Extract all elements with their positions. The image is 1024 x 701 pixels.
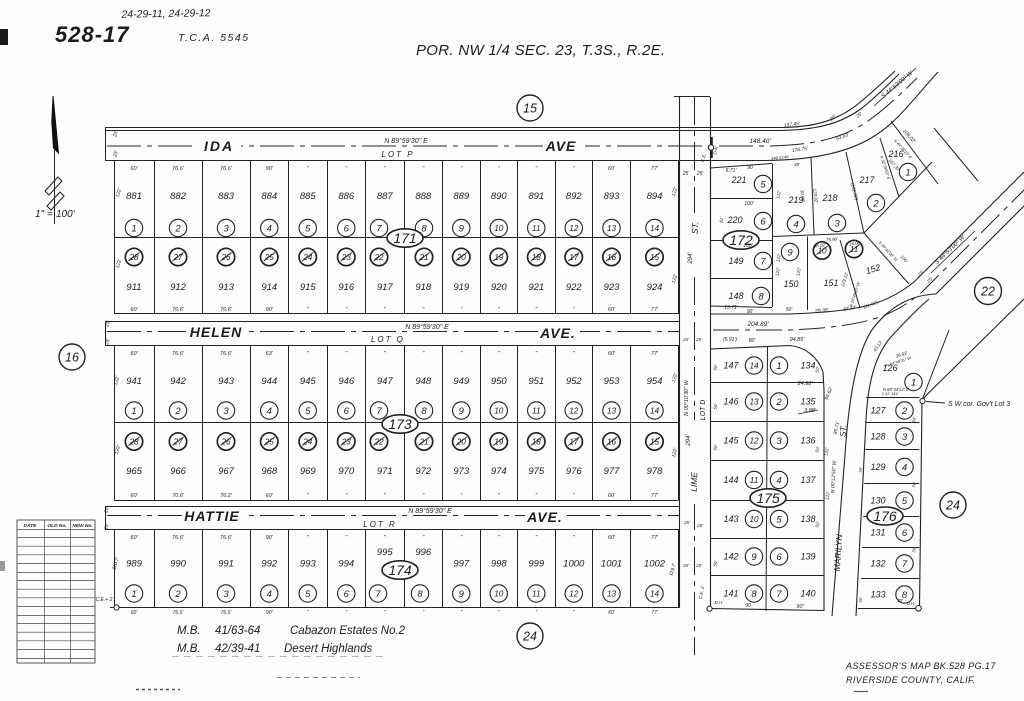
svg-text:(5.91'): (5.91') xyxy=(723,337,737,343)
svg-text:147: 147 xyxy=(723,361,739,371)
svg-text:25': 25' xyxy=(683,520,690,525)
svg-text:148: 148 xyxy=(728,291,743,301)
svg-text:6: 6 xyxy=(902,528,908,539)
svg-text:6: 6 xyxy=(776,552,782,563)
svg-text:S W cor. Gov't Lot 3: S W cor. Gov't Lot 3 xyxy=(948,401,1010,408)
svg-text:9: 9 xyxy=(459,589,465,600)
svg-text:60': 60' xyxy=(608,535,616,541)
svg-text:": " xyxy=(535,610,537,616)
svg-text:5: 5 xyxy=(760,179,766,190)
svg-text:1: 1 xyxy=(911,377,916,388)
svg-text:": " xyxy=(460,610,462,616)
svg-text:77': 77' xyxy=(651,351,659,357)
svg-text:3.88': 3.88' xyxy=(804,408,817,414)
svg-text:946: 946 xyxy=(338,376,355,387)
svg-text:888: 888 xyxy=(415,191,432,202)
svg-text:13: 13 xyxy=(749,397,759,406)
svg-text:951: 951 xyxy=(528,376,544,387)
svg-text:10: 10 xyxy=(494,589,504,598)
svg-text:7: 7 xyxy=(902,559,908,570)
svg-text:975: 975 xyxy=(528,466,545,477)
svg-text:Cabazon Estates No.2: Cabazon Estates No.2 xyxy=(290,625,406,637)
svg-text:77': 77' xyxy=(651,166,659,172)
svg-text:24-29-11, 24-29-12: 24-29-11, 24-29-12 xyxy=(120,7,210,21)
svg-text:100': 100' xyxy=(743,243,753,249)
svg-text:HELEN: HELEN xyxy=(190,324,242,340)
svg-text:1.11' 144': 1.11' 144' xyxy=(882,391,899,396)
svg-text:3: 3 xyxy=(834,218,840,229)
svg-text:9: 9 xyxy=(751,552,757,563)
svg-text:IDA: IDA xyxy=(204,138,234,154)
svg-text:5: 5 xyxy=(305,406,311,417)
svg-text:131: 131 xyxy=(870,528,885,538)
svg-text:176: 176 xyxy=(873,508,897,524)
svg-text:139: 139 xyxy=(800,552,815,562)
svg-text:886: 886 xyxy=(338,191,355,202)
svg-text:950: 950 xyxy=(491,376,508,387)
svg-text:HATTIE: HATTIE xyxy=(184,508,240,524)
svg-text:76.6': 76.6' xyxy=(173,610,185,616)
svg-text:11: 11 xyxy=(750,476,759,485)
svg-text:143: 143 xyxy=(723,514,738,524)
svg-text:3: 3 xyxy=(776,436,782,447)
svg-text:999: 999 xyxy=(528,559,545,570)
svg-text:8: 8 xyxy=(758,291,764,302)
svg-text:90': 90' xyxy=(266,307,274,313)
svg-text:DATE: DATE xyxy=(24,523,38,529)
svg-text:994: 994 xyxy=(338,559,354,570)
svg-text:972: 972 xyxy=(415,466,432,477)
svg-text:890: 890 xyxy=(491,191,508,202)
svg-text:127: 127 xyxy=(870,406,886,416)
svg-text:60': 60' xyxy=(608,610,616,616)
svg-text:944: 944 xyxy=(261,376,277,387)
svg-text:129: 129 xyxy=(870,462,885,472)
svg-text:881: 881 xyxy=(126,191,142,202)
svg-text:N 89°59'30" E: N 89°59'30" E xyxy=(405,323,449,331)
svg-text:42/39-41: 42/39-41 xyxy=(215,643,260,655)
svg-text:917: 917 xyxy=(377,282,394,293)
svg-text:90: 90 xyxy=(745,603,751,609)
svg-text:1: 1 xyxy=(131,406,136,417)
svg-text:": " xyxy=(345,610,347,616)
svg-text:70.6': 70.6' xyxy=(172,493,185,499)
svg-text:968: 968 xyxy=(261,466,278,477)
svg-text:921: 921 xyxy=(528,282,544,293)
svg-text:76.6': 76.6' xyxy=(172,351,185,357)
svg-text:60': 60' xyxy=(130,351,138,357)
svg-text:882: 882 xyxy=(170,191,187,202)
svg-text:952: 952 xyxy=(566,376,583,387)
svg-text:5: 5 xyxy=(305,223,311,234)
svg-text:911: 911 xyxy=(126,282,141,293)
svg-text:63': 63' xyxy=(266,351,274,357)
svg-text:13: 13 xyxy=(607,224,617,233)
svg-text:941: 941 xyxy=(126,376,142,387)
svg-text:LOT R: LOT R xyxy=(363,520,397,529)
svg-text:48': 48' xyxy=(794,162,800,167)
svg-text:173: 173 xyxy=(388,416,412,432)
svg-text:971: 971 xyxy=(377,466,393,477)
svg-text:90': 90' xyxy=(266,166,274,172)
svg-text:90': 90' xyxy=(266,610,274,616)
svg-text:993: 993 xyxy=(300,559,317,570)
svg-text:N 89°59'30" E: N 89°59'30" E xyxy=(408,507,452,515)
svg-text:50': 50' xyxy=(911,481,917,487)
svg-text:978: 978 xyxy=(647,466,664,477)
svg-text:4: 4 xyxy=(267,223,272,234)
svg-text:60': 60' xyxy=(130,166,138,172)
svg-text:920: 920 xyxy=(491,282,508,293)
svg-text:25': 25' xyxy=(682,337,689,342)
svg-text:990: 990 xyxy=(170,559,187,570)
svg-text:891: 891 xyxy=(528,191,544,202)
svg-text:50': 50' xyxy=(911,416,917,422)
svg-text:2: 2 xyxy=(775,397,782,408)
svg-text:70': 70' xyxy=(897,598,903,603)
svg-text:991: 991 xyxy=(218,559,234,570)
svg-text:144: 144 xyxy=(723,475,738,485)
svg-text:948: 948 xyxy=(415,376,432,387)
svg-text:76.6': 76.6' xyxy=(220,535,233,541)
svg-text:25': 25' xyxy=(696,171,705,177)
svg-text:949: 949 xyxy=(453,376,470,387)
svg-text:3: 3 xyxy=(902,432,908,443)
svg-text:970: 970 xyxy=(338,466,355,477)
svg-text:4: 4 xyxy=(267,406,272,417)
svg-text:Desert Highlands: Desert Highlands xyxy=(284,643,372,655)
svg-text:6: 6 xyxy=(760,216,766,227)
svg-text:77': 77' xyxy=(651,493,659,499)
svg-text:5: 5 xyxy=(776,514,782,525)
svg-text:8: 8 xyxy=(751,589,757,600)
svg-text:14: 14 xyxy=(749,361,759,370)
svg-text:2: 2 xyxy=(872,198,879,209)
svg-text:77': 77' xyxy=(651,535,659,541)
svg-text:1: 1 xyxy=(776,361,781,372)
svg-text:": " xyxy=(384,610,386,616)
svg-text:76.6': 76.6' xyxy=(172,307,185,313)
svg-text:7: 7 xyxy=(376,223,382,234)
svg-text:922: 922 xyxy=(566,282,583,293)
svg-text:": " xyxy=(573,610,575,616)
svg-text:294': 294' xyxy=(688,252,694,265)
svg-text:60': 60' xyxy=(130,535,138,541)
svg-text:9: 9 xyxy=(459,223,465,234)
svg-text:133: 133 xyxy=(870,590,885,600)
svg-text:976: 976 xyxy=(566,466,583,477)
svg-text:60': 60' xyxy=(130,307,138,313)
svg-text:942: 942 xyxy=(170,376,187,387)
svg-text:145: 145 xyxy=(723,436,739,446)
svg-text:76.6': 76.6' xyxy=(221,610,233,616)
svg-text:128: 128 xyxy=(870,432,885,442)
svg-text:LIME: LIME xyxy=(689,471,700,492)
svg-text:4: 4 xyxy=(902,462,907,473)
svg-text:RIVERSIDE COUNTY, CALIF.: RIVERSIDE COUNTY, CALIF. xyxy=(846,675,976,685)
svg-text:60': 60' xyxy=(608,493,616,499)
svg-text:945: 945 xyxy=(300,376,317,387)
svg-text:132: 132 xyxy=(870,559,885,569)
svg-text:146: 146 xyxy=(723,397,738,407)
svg-text:918: 918 xyxy=(415,282,432,293)
svg-text:912: 912 xyxy=(170,282,187,293)
svg-text:M.B.: M.B. xyxy=(177,643,201,655)
svg-text:13: 13 xyxy=(607,589,617,598)
svg-text:923: 923 xyxy=(604,282,621,293)
svg-text:9: 9 xyxy=(787,247,793,258)
svg-text:LOT Q: LOT Q xyxy=(371,335,405,344)
svg-text:94.85': 94.85' xyxy=(790,337,806,343)
svg-text:29.35': 29.35' xyxy=(814,307,830,314)
svg-text:14: 14 xyxy=(650,406,660,415)
svg-text:1" =: 1" = xyxy=(35,209,53,220)
svg-text:171: 171 xyxy=(393,230,416,246)
svg-text:1000: 1000 xyxy=(563,559,585,570)
svg-text:142: 142 xyxy=(723,552,738,562)
svg-text:ASSESSOR'S MAP BK.528 PG.17: ASSESSOR'S MAP BK.528 PG.17 xyxy=(845,661,996,671)
svg-text:2: 2 xyxy=(901,406,908,417)
svg-text:150: 150 xyxy=(783,279,798,289)
svg-text:7: 7 xyxy=(375,589,381,600)
svg-text:528-17: 528-17 xyxy=(55,22,130,47)
svg-text:25': 25' xyxy=(696,523,703,528)
svg-text:60': 60' xyxy=(608,166,616,172)
svg-text:7: 7 xyxy=(376,406,382,417)
svg-text:887: 887 xyxy=(377,191,394,202)
svg-text:12: 12 xyxy=(569,224,579,233)
svg-text:967: 967 xyxy=(218,466,235,477)
svg-text:973: 973 xyxy=(453,466,470,477)
svg-text:60': 60' xyxy=(130,493,138,499)
svg-text:977: 977 xyxy=(604,466,621,477)
svg-text:25': 25' xyxy=(682,171,691,177)
svg-text:1002: 1002 xyxy=(644,559,666,570)
svg-text:25': 25' xyxy=(682,563,689,568)
svg-text:50': 50' xyxy=(911,546,917,552)
svg-text:7: 7 xyxy=(776,589,782,600)
svg-text:14: 14 xyxy=(650,589,660,598)
svg-text:1: 1 xyxy=(131,589,136,600)
svg-text:2: 2 xyxy=(174,589,181,600)
svg-text:943: 943 xyxy=(218,376,235,387)
svg-text:221: 221 xyxy=(730,175,746,185)
svg-text:915: 915 xyxy=(300,282,317,293)
svg-text:25': 25' xyxy=(695,563,702,568)
svg-text:6: 6 xyxy=(344,223,350,234)
svg-text:76.6': 76.6' xyxy=(220,351,233,357)
svg-text:134: 134 xyxy=(800,361,815,371)
svg-text:24: 24 xyxy=(945,499,960,513)
svg-text:AVE: AVE xyxy=(545,138,577,154)
svg-text:": " xyxy=(422,610,424,616)
svg-text:M.B.: M.B. xyxy=(177,625,201,637)
svg-text:30.90': 30.90' xyxy=(799,190,805,203)
svg-text:892: 892 xyxy=(566,191,583,202)
svg-text:135: 135 xyxy=(800,397,816,407)
svg-text:174: 174 xyxy=(388,562,412,578)
svg-text:25': 25' xyxy=(695,337,702,342)
svg-text:": " xyxy=(307,610,309,616)
svg-text:ST.: ST. xyxy=(690,221,700,234)
svg-text:141: 141 xyxy=(723,589,738,599)
svg-text:22: 22 xyxy=(980,285,995,299)
svg-text:974: 974 xyxy=(491,466,507,477)
svg-text:AVE.: AVE. xyxy=(526,509,563,525)
svg-text:7: 7 xyxy=(760,256,766,267)
svg-text:LOT P: LOT P xyxy=(381,150,414,159)
svg-text:1001: 1001 xyxy=(601,559,622,570)
svg-text:996: 996 xyxy=(415,547,432,558)
svg-text:6: 6 xyxy=(344,406,350,417)
svg-text:947: 947 xyxy=(377,376,394,387)
svg-text:4: 4 xyxy=(793,219,798,230)
svg-text:220: 220 xyxy=(726,215,742,225)
svg-text:140: 140 xyxy=(800,589,815,599)
svg-text:76.6': 76.6' xyxy=(220,307,233,313)
svg-text:3: 3 xyxy=(223,589,229,600)
svg-text:50': 50' xyxy=(858,596,864,602)
svg-text:61': 61' xyxy=(719,216,725,223)
svg-text:995: 995 xyxy=(377,547,394,558)
svg-text:998: 998 xyxy=(491,559,508,570)
svg-text:100': 100' xyxy=(56,209,76,220)
svg-text:76.6': 76.6' xyxy=(220,166,233,172)
svg-text:76.6': 76.6' xyxy=(172,166,185,172)
svg-text:5: 5 xyxy=(902,496,908,507)
svg-text:4: 4 xyxy=(776,475,781,486)
svg-text:137: 137 xyxy=(800,475,816,485)
svg-text:90': 90' xyxy=(796,604,804,610)
svg-text:138: 138 xyxy=(800,514,815,524)
svg-text:893: 893 xyxy=(604,191,621,202)
svg-text:953: 953 xyxy=(604,376,621,387)
svg-text:885: 885 xyxy=(300,191,317,202)
svg-text:100': 100' xyxy=(744,201,754,207)
svg-text:16: 16 xyxy=(65,351,79,365)
svg-text:175: 175 xyxy=(756,490,780,506)
svg-text:894: 894 xyxy=(647,191,663,202)
svg-text:883: 883 xyxy=(218,191,235,202)
svg-text:90': 90' xyxy=(266,535,274,541)
svg-text:D.H.: D.H. xyxy=(715,600,724,605)
svg-text:80': 80' xyxy=(749,338,757,344)
svg-text:": " xyxy=(498,610,500,616)
svg-text:76.6': 76.6' xyxy=(172,535,185,541)
svg-text:997: 997 xyxy=(453,559,470,570)
svg-text:POR. NW 1/4 SEC. 23, T.3S.,: POR. NW 1/4 SEC. 23, T.3S., R.2E. xyxy=(416,42,665,59)
svg-text:965: 965 xyxy=(126,466,143,477)
svg-text:969: 969 xyxy=(300,466,317,477)
svg-text:15: 15 xyxy=(523,102,537,116)
svg-text:4: 4 xyxy=(267,589,272,600)
svg-text:3: 3 xyxy=(223,406,229,417)
svg-text:889: 889 xyxy=(453,191,470,202)
svg-text:204.89': 204.89' xyxy=(746,321,769,328)
svg-text:1: 1 xyxy=(905,167,910,178)
svg-text:12: 12 xyxy=(569,589,579,598)
svg-text:NEW No.: NEW No. xyxy=(72,523,92,529)
svg-text:N 00°10'30" W: N 00°10'30" W xyxy=(684,379,690,416)
svg-text:924: 924 xyxy=(647,282,663,293)
svg-text:5.71': 5.71' xyxy=(726,168,738,174)
svg-text:14: 14 xyxy=(650,224,660,233)
svg-text:5: 5 xyxy=(305,589,311,600)
svg-text:989: 989 xyxy=(126,559,143,570)
svg-text:24.98': 24.98' xyxy=(797,381,814,387)
svg-text:914: 914 xyxy=(261,282,277,293)
svg-text:60': 60' xyxy=(608,351,616,357)
svg-text:8: 8 xyxy=(417,589,423,600)
svg-text:992: 992 xyxy=(261,559,278,570)
svg-text:3: 3 xyxy=(223,223,229,234)
svg-text:77': 77' xyxy=(651,610,659,616)
svg-text:294': 294' xyxy=(686,434,692,447)
svg-text:90: 90 xyxy=(747,165,753,171)
svg-text:60': 60' xyxy=(608,307,616,313)
svg-text:D.H.: D.H. xyxy=(907,601,915,606)
svg-text:130: 130 xyxy=(870,496,885,506)
svg-text:884: 884 xyxy=(261,191,277,202)
svg-text:1: 1 xyxy=(131,223,136,234)
svg-text:151: 151 xyxy=(823,278,838,288)
svg-text:11: 11 xyxy=(532,589,541,598)
svg-text:77': 77' xyxy=(651,307,659,313)
svg-text:9: 9 xyxy=(459,406,465,417)
svg-text:10: 10 xyxy=(494,406,504,415)
svg-text:41/63-64: 41/63-64 xyxy=(215,625,260,637)
svg-text:12: 12 xyxy=(749,436,759,445)
svg-text:15.71': 15.71' xyxy=(724,305,739,311)
svg-text:LOT D: LOT D xyxy=(700,400,707,421)
svg-text:149: 149 xyxy=(728,256,743,266)
svg-text:6: 6 xyxy=(344,589,350,600)
svg-text:T.C.A. 5545: T.C.A. 5545 xyxy=(178,32,250,44)
svg-text:2: 2 xyxy=(174,223,181,234)
svg-text:13: 13 xyxy=(607,406,617,415)
svg-text:966: 966 xyxy=(170,466,187,477)
svg-text:N 89°59'30" E: N 89°59'30" E xyxy=(384,137,428,145)
svg-text:50': 50' xyxy=(786,307,794,313)
svg-text:8: 8 xyxy=(421,406,427,417)
svg-text:136: 136 xyxy=(800,436,815,446)
svg-text:217: 217 xyxy=(858,175,875,185)
svg-text:75.90': 75.90' xyxy=(826,236,839,242)
svg-text:2: 2 xyxy=(174,406,181,417)
svg-text:AVE.: AVE. xyxy=(539,325,576,341)
svg-text:C.E.+ 2: C.E.+ 2 xyxy=(96,597,113,603)
svg-text:12: 12 xyxy=(569,406,579,415)
svg-text:11: 11 xyxy=(532,406,541,415)
svg-text:10: 10 xyxy=(749,515,759,524)
svg-text:60': 60' xyxy=(131,610,139,616)
svg-text:24: 24 xyxy=(522,630,537,644)
svg-text:10: 10 xyxy=(494,224,504,233)
svg-text:913: 913 xyxy=(218,282,235,293)
svg-text:76.2': 76.2' xyxy=(220,493,233,499)
svg-text:218: 218 xyxy=(821,193,837,203)
svg-text:50': 50' xyxy=(858,466,864,472)
svg-text:11: 11 xyxy=(532,224,541,233)
svg-text:919: 919 xyxy=(453,282,470,293)
svg-text:954: 954 xyxy=(647,376,663,387)
svg-text:60': 60' xyxy=(266,493,274,499)
svg-text:OLD No.: OLD No. xyxy=(47,523,66,529)
svg-text:148.40': 148.40' xyxy=(749,138,771,145)
svg-text:916: 916 xyxy=(338,282,355,293)
svg-text:8: 8 xyxy=(421,223,427,234)
